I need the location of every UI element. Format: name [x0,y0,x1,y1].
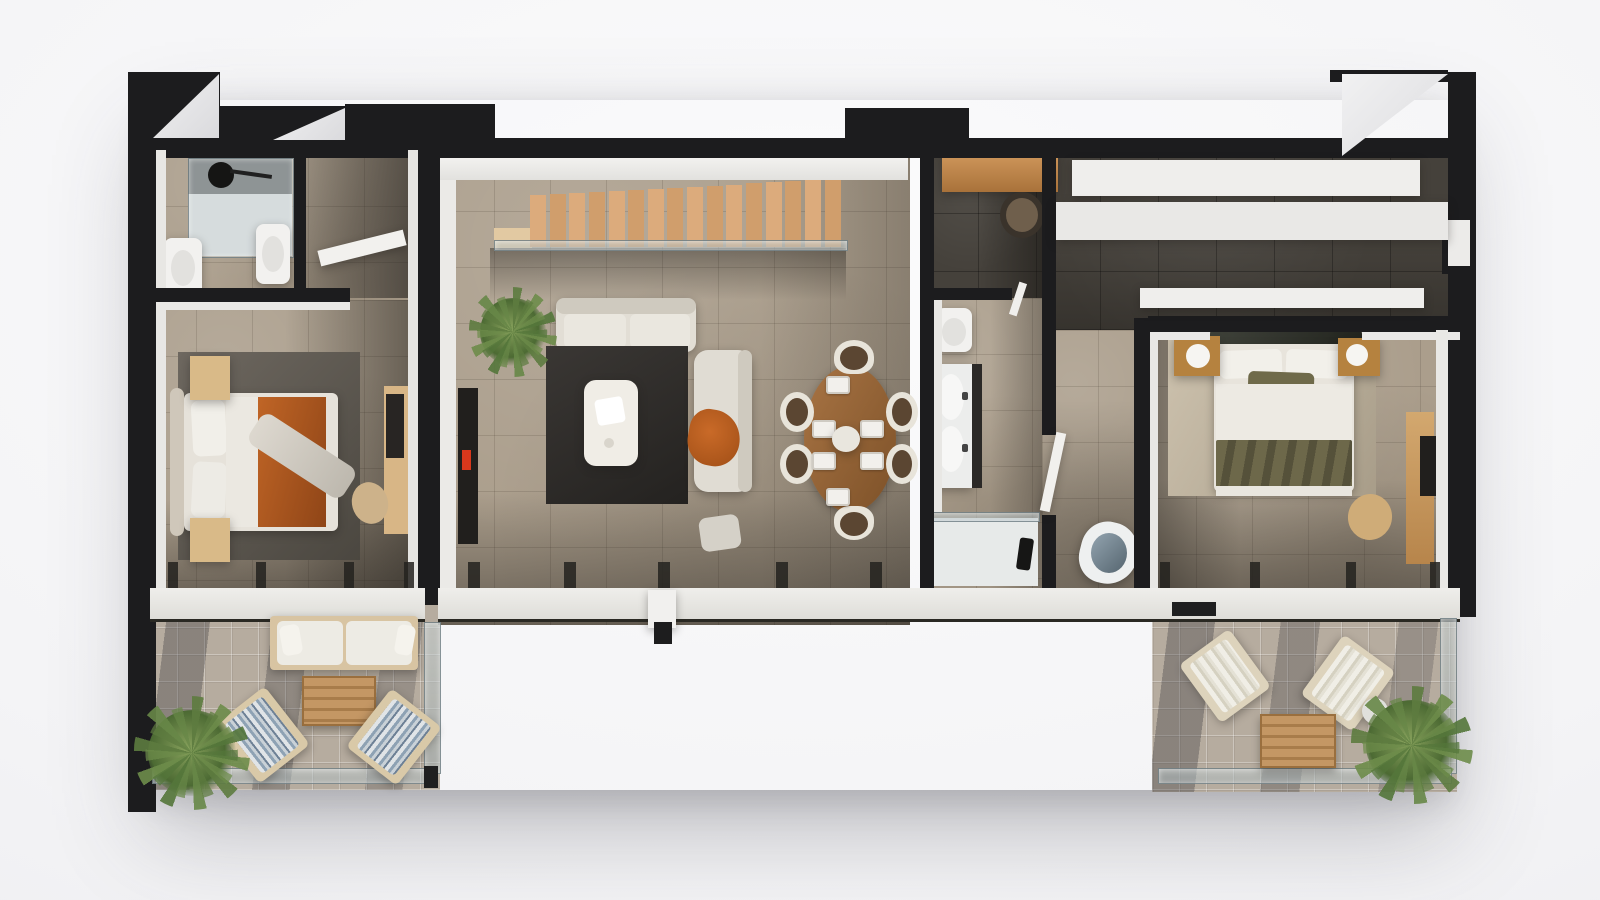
hall-bedroom-wall [1134,318,1150,605]
faucet [962,444,968,452]
sill-edge-line [438,619,1142,622]
place-setting [812,452,836,470]
sofa-cushion [630,314,690,348]
facade-pillar-base [654,622,672,644]
sill-edge-line [1140,619,1460,622]
nightstand [190,518,230,562]
toilet-bowl [942,318,966,346]
place-setting [860,420,884,438]
stair-tread [805,180,821,247]
dining-chair-seat [840,346,868,370]
wall-face [408,150,418,602]
shower-head [208,162,234,188]
stairs-cast-shadow [490,248,846,300]
hall-armchair-seat [1091,533,1127,573]
living-service-wall [920,155,934,588]
closet-shelf [1140,288,1424,308]
parapet-block [345,104,495,142]
wall-face [440,180,456,590]
stair-tread [785,181,801,247]
wall-face [440,158,908,180]
bed-pillow [191,399,228,457]
tv-accent-red [462,450,471,470]
stair-tread [569,193,585,247]
wall-face [156,302,350,310]
stair-tread [667,188,683,247]
sofa-cushion [564,314,626,348]
nightstand-lamp [1186,344,1210,368]
stair-guard-rail [494,240,848,251]
bathroom-top-wall [920,288,1012,300]
top-wall [920,138,1463,158]
place-setting [826,488,850,506]
wall-notch [1448,220,1470,266]
sofa-pillow [698,513,742,552]
wc-dark-area [306,150,418,298]
closet-shelf [1072,160,1420,196]
bed-blanket-olive [1216,440,1352,490]
faucet [962,392,968,400]
closet-shelf [1056,202,1448,240]
floor-plan [0,0,1600,900]
table-centerpiece [832,426,860,452]
potted-plant [480,298,546,366]
closet-south-wall [1148,316,1460,332]
terrace-corner-post [424,766,438,788]
potted-plant [1366,700,1458,790]
service-hall-wall [1042,155,1056,435]
stair-tread [726,185,742,247]
dining-chair-seat [840,512,868,536]
wall-face [934,300,942,512]
right-outer-wall [1448,72,1476,617]
dining-chair-seat [892,450,912,478]
nightstand [190,356,230,400]
south-sill [438,588,1142,622]
terrace-glass-rail [424,622,441,774]
entry-chair-seat [1006,198,1038,232]
sofa-main-backrest [556,298,696,314]
outdoor-coffee-table [302,676,376,726]
stair-tread [825,179,841,247]
stair-tread [766,182,782,247]
stair-tread [609,191,625,247]
place-setting [860,452,884,470]
potted-plant [148,710,236,796]
outdoor-coffee-table [1260,714,1336,768]
wall-face [1150,338,1158,605]
stair-tread [589,192,605,247]
shower-glass [922,512,1040,522]
stair-tread [687,187,703,247]
place-setting [826,376,850,394]
parapet-block [845,108,969,142]
toilet-bowl [262,236,284,272]
bed-sheet [1216,384,1352,442]
toilet-bowl [171,250,195,286]
stair-tread [648,189,664,247]
bed-sheet [226,397,260,527]
bed-pillow [191,461,228,519]
dining-chair-seat [892,398,912,426]
coffee-table-tray [594,396,626,426]
dining-chair-seat [786,398,808,426]
bed-foot-sheet [1216,486,1352,496]
sofa-side-backrest [738,350,752,492]
stair-tread [707,186,723,247]
stair-tread [628,190,644,247]
wall-face [1150,332,1210,340]
bathroom-divider-wall [294,150,306,296]
desk-tv-panel [386,394,404,458]
bathroom-south-wall [156,288,350,302]
wall-face [156,150,166,602]
coffee-table-cup [604,438,614,448]
vanity-counter [972,364,982,488]
bedroom-living-wall [418,138,440,605]
stair-tread [746,183,762,247]
terrace-wall-stub [1172,602,1216,616]
dining-chair-seat [786,450,808,478]
nightstand-lamp [1346,344,1368,366]
bed-headboard [170,388,184,536]
